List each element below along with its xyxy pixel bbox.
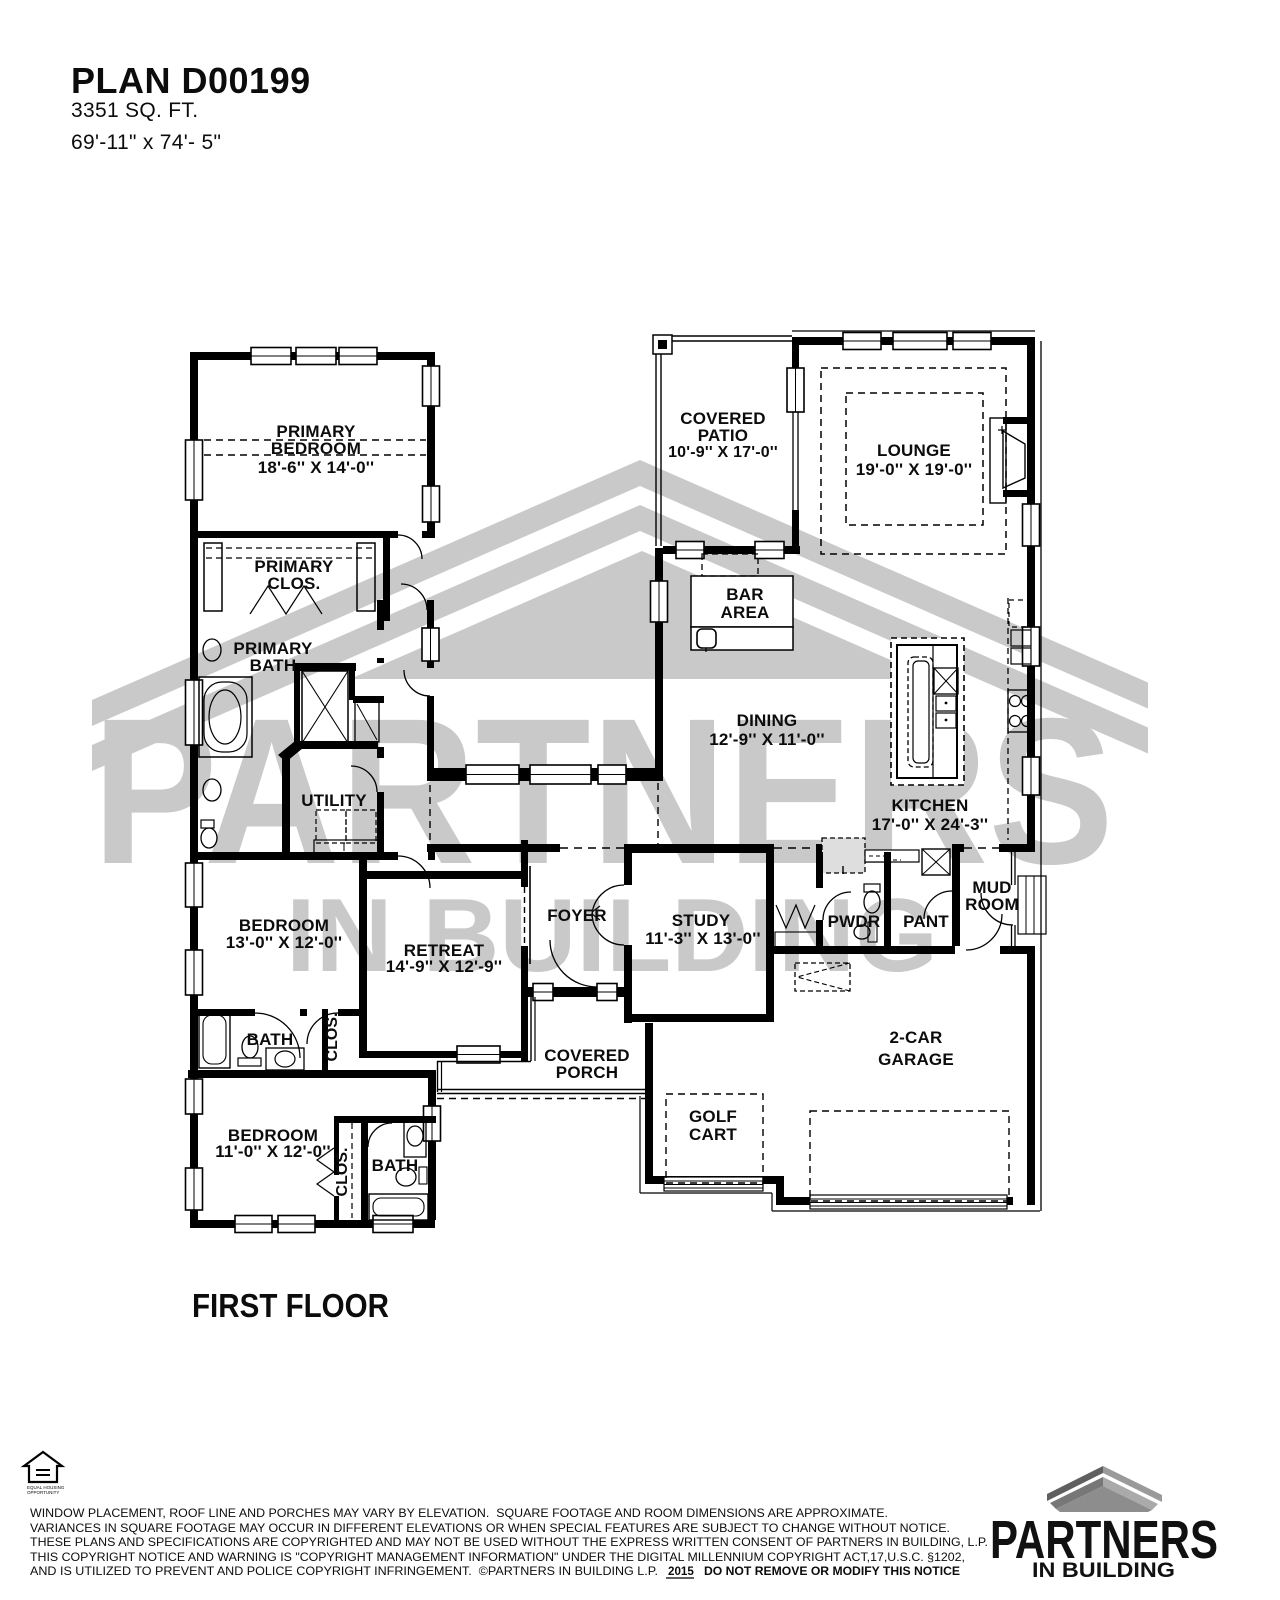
svg-text:ROOM: ROOM — [965, 895, 1019, 914]
svg-text:CART: CART — [689, 1125, 737, 1144]
svg-text:FIRST FLOOR: FIRST FLOOR — [192, 1287, 389, 1324]
svg-text:13'-0'' X 12'-0'': 13'-0'' X 12'-0'' — [226, 933, 343, 952]
svg-text:2-CAR: 2-CAR — [890, 1028, 943, 1047]
svg-text:DO NOT REMOVE OR MODIFY THIS N: DO NOT REMOVE OR MODIFY THIS NOTICE — [704, 1565, 960, 1578]
svg-text:GOLF: GOLF — [689, 1107, 737, 1126]
svg-text:11'-3'' X 13'-0'': 11'-3'' X 13'-0'' — [645, 929, 761, 948]
svg-text:VARIANCES IN SQUARE FOOTAGE MA: VARIANCES IN SQUARE FOOTAGE MAY OCCUR IN… — [30, 1522, 950, 1535]
svg-text:STUDY: STUDY — [672, 911, 731, 930]
svg-text:PORCH: PORCH — [556, 1063, 618, 1082]
svg-text:GARAGE: GARAGE — [878, 1050, 954, 1069]
svg-text:CLOS.: CLOS. — [324, 1013, 341, 1062]
svg-text:DINING: DINING — [737, 711, 798, 730]
svg-text:PANT: PANT — [903, 912, 949, 931]
svg-text:CLOS.: CLOS. — [334, 1148, 351, 1197]
svg-text:11'-0'' X 12'-0'': 11'-0'' X 12'-0'' — [215, 1142, 331, 1161]
svg-text:12'-9'' X 11'-0'': 12'-9'' X 11'-0'' — [709, 730, 825, 749]
svg-text:10'-9'' X 17'-0'': 10'-9'' X 17'-0'' — [668, 444, 778, 461]
svg-text:18'-6'' X 14'-0'': 18'-6'' X 14'-0'' — [258, 458, 375, 477]
svg-text:PWDR: PWDR — [828, 912, 881, 931]
svg-text:BATH: BATH — [250, 656, 297, 675]
svg-text:2015: 2015 — [668, 1565, 694, 1578]
svg-text:PATIO: PATIO — [698, 426, 748, 445]
svg-text:14'-9'' X 12'-9'': 14'-9'' X 12'-9'' — [386, 957, 503, 976]
svg-text:BATH: BATH — [247, 1030, 294, 1049]
svg-text:LOUNGE: LOUNGE — [877, 441, 951, 460]
svg-text:AREA: AREA — [721, 603, 770, 622]
svg-text:3351 SQ. FT.: 3351 SQ. FT. — [71, 99, 198, 122]
svg-text:69'-11" x 74'- 5": 69'-11" x 74'- 5" — [71, 131, 221, 154]
svg-text:17'-0'' X 24'-3'': 17'-0'' X 24'-3'' — [872, 815, 989, 834]
svg-text:BAR: BAR — [726, 585, 763, 604]
svg-text:THIS COPYRIGHT NOTICE AND WARN: THIS COPYRIGHT NOTICE AND WARNING IS "CO… — [30, 1551, 965, 1564]
svg-text:KITCHEN: KITCHEN — [892, 796, 969, 815]
svg-text:BATH: BATH — [372, 1156, 419, 1175]
svg-text:BEDROOM: BEDROOM — [271, 439, 361, 458]
svg-text:THESE PLANS AND SPECIFICATIONS: THESE PLANS AND SPECIFICATIONS ARE COPYR… — [30, 1536, 988, 1549]
svg-text:IN BUILDING: IN BUILDING — [286, 878, 938, 994]
svg-text:CLOS.: CLOS. — [268, 574, 321, 593]
svg-text:PLAN D00199: PLAN D00199 — [71, 60, 311, 101]
svg-text:OPPORTUNITY: OPPORTUNITY — [27, 1490, 59, 1495]
svg-text:WINDOW PLACEMENT, ROOF LINE AN: WINDOW PLACEMENT, ROOF LINE AND PORCHES … — [30, 1507, 888, 1520]
svg-text:19'-0'' X 19'-0'': 19'-0'' X 19'-0'' — [856, 460, 973, 479]
svg-text:AND IS UTILIZED TO PREVENT AND: AND IS UTILIZED TO PREVENT AND POLICE CO… — [30, 1565, 658, 1578]
svg-text:FOYER: FOYER — [547, 906, 607, 925]
svg-text:IN BUILDING: IN BUILDING — [1032, 1559, 1175, 1582]
svg-text:UTILITY: UTILITY — [301, 791, 367, 810]
